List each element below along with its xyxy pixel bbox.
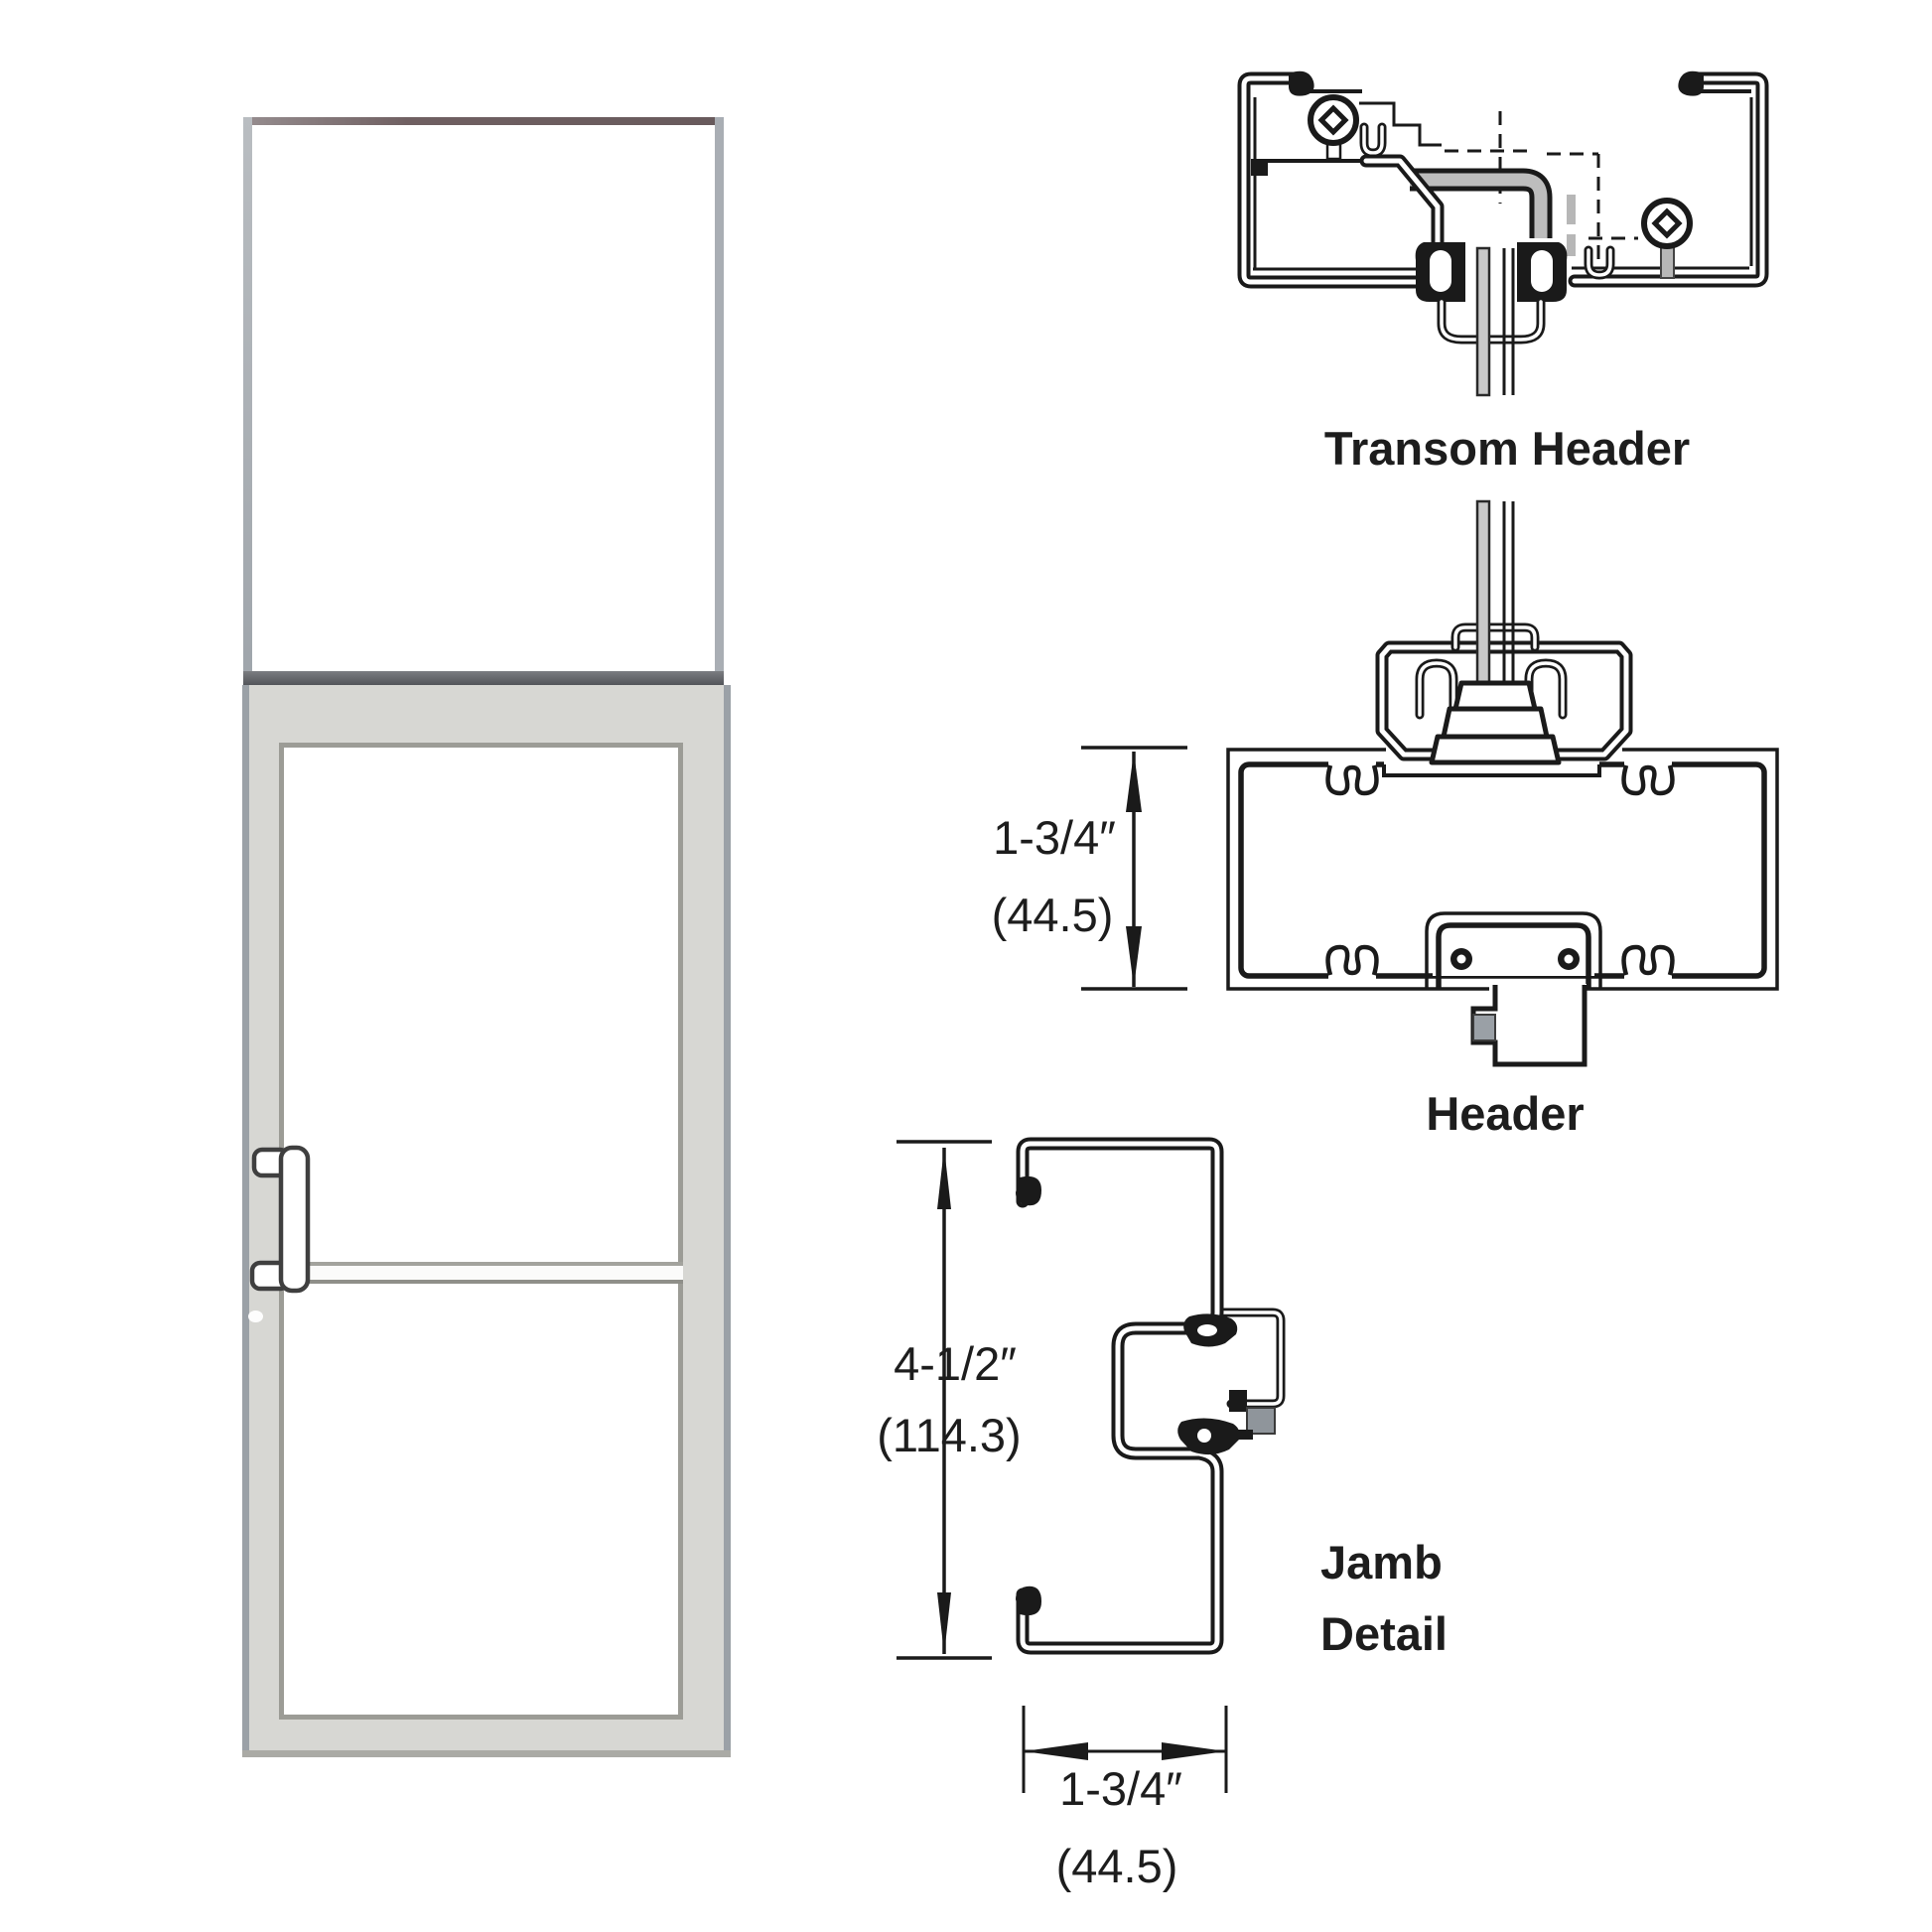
jamb-width-dimension-metric: (44.5) [1056, 1843, 1178, 1889]
fastener-screw-right [1644, 201, 1690, 278]
door-elevation [0, 0, 854, 1932]
left-anchor-hook [1289, 71, 1314, 96]
door-glass [279, 743, 683, 1720]
fastener-screw-left [1311, 97, 1356, 159]
jamb-label-line2: Detail [1320, 1610, 1448, 1657]
glass-section-transom [1477, 248, 1513, 395]
jamb-height-dimension-graphic [897, 1142, 992, 1658]
header-dimension-imperial: 1-3/4″ [993, 814, 1116, 861]
door-pull-handle [246, 1140, 318, 1299]
jamb-width-dimension-imperial: 1-3/4″ [1059, 1765, 1182, 1812]
handle-grip-bar [281, 1148, 308, 1291]
jamb-height-dimension-imperial: 4-1/2″ [894, 1340, 1017, 1387]
jamb-bottom-hook [1016, 1587, 1041, 1615]
door-mid-rail [296, 1262, 683, 1284]
transom-right-jamb [715, 117, 724, 685]
transom-header-label: Transom Header [1324, 425, 1690, 472]
page: Transom Header 1-3/4″ (44.5) Header 4-1/… [0, 0, 1932, 1932]
transom-left-jamb [243, 117, 252, 685]
glass-section-header [1477, 501, 1513, 695]
transom-sill-bar [243, 671, 724, 685]
transom-header-section-drawing [1211, 60, 1817, 452]
jamb-height-dimension-metric: (114.3) [877, 1412, 1021, 1458]
door-right-edge [724, 685, 731, 1757]
jamb-label-line1: Jamb [1320, 1539, 1443, 1586]
door-bottom-edge [242, 1750, 731, 1757]
header-dimension-metric: (44.5) [992, 892, 1114, 938]
lock-cylinder-dot [248, 1311, 263, 1322]
right-anchor-hook [1678, 71, 1704, 96]
transom-top-rail [243, 117, 724, 125]
transom-glass [252, 125, 715, 673]
stop-gasket-block [1473, 1015, 1495, 1040]
header-label: Header [1426, 1090, 1584, 1137]
header-dimension-graphic [1081, 748, 1187, 989]
jamb-top-hook [1016, 1176, 1041, 1205]
